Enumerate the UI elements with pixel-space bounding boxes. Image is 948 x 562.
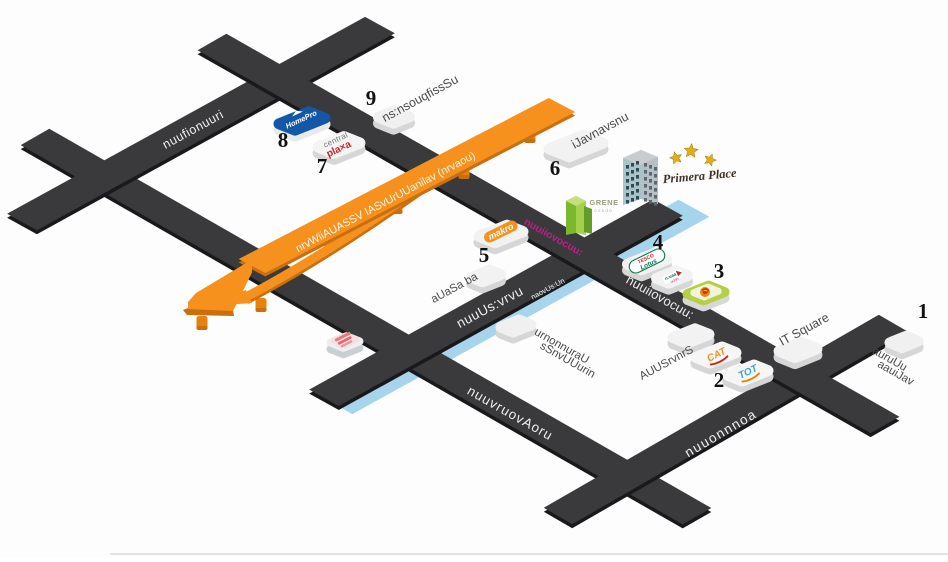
svg-text:7: 7 xyxy=(317,154,328,178)
svg-text:4: 4 xyxy=(653,230,664,254)
svg-text:GRENE: GRENE xyxy=(589,198,618,207)
svg-text:1: 1 xyxy=(918,299,929,323)
svg-text:5: 5 xyxy=(479,243,490,267)
svg-text:3: 3 xyxy=(714,259,725,283)
svg-text:2: 2 xyxy=(714,368,725,392)
svg-text:9: 9 xyxy=(366,86,377,110)
svg-text:8: 8 xyxy=(278,128,289,152)
svg-text:c o n d o: c o n d o xyxy=(594,208,612,213)
svg-text:6: 6 xyxy=(550,156,561,180)
